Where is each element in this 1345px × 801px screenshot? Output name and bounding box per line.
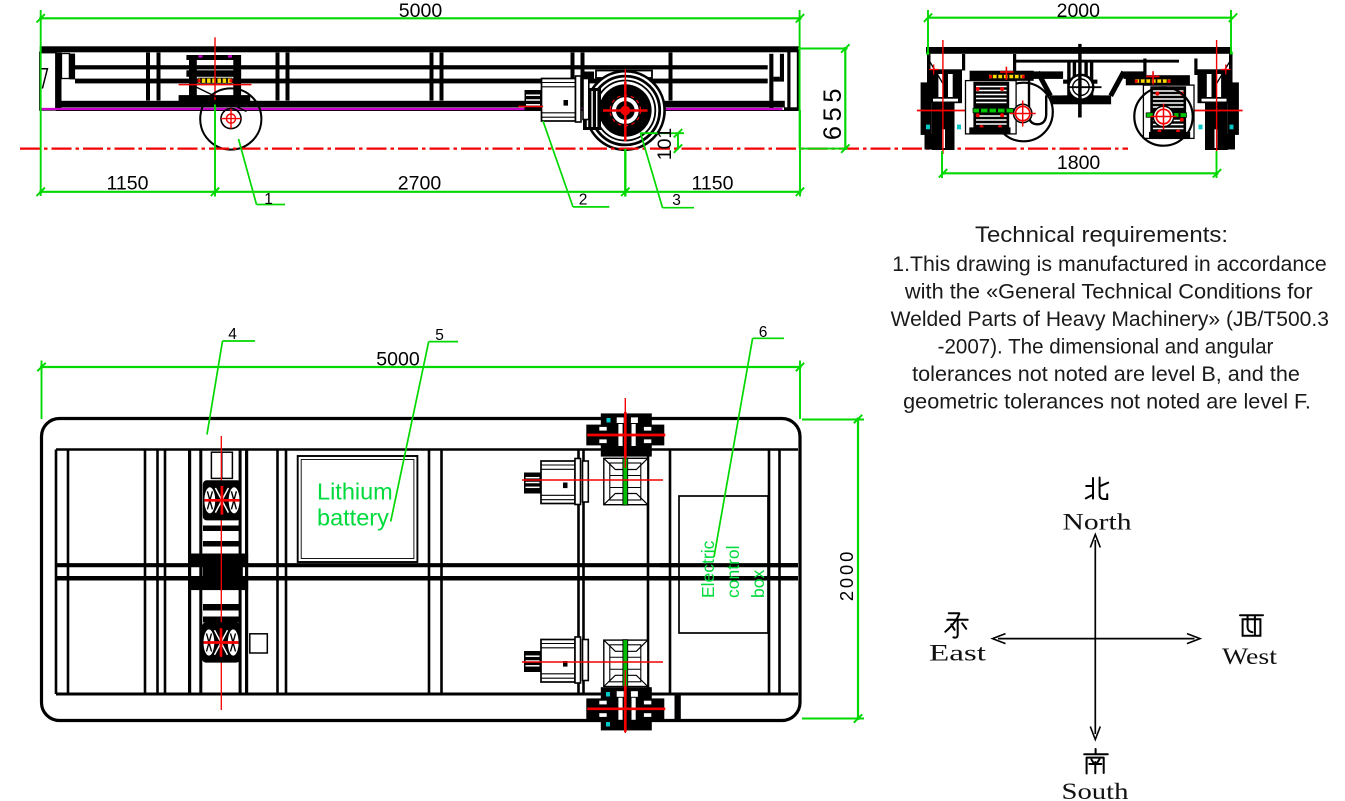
- svg-text:2000: 2000: [1057, 0, 1101, 22]
- svg-text:2000: 2000: [836, 549, 857, 601]
- svg-text:2: 2: [579, 192, 588, 209]
- svg-text:battery: battery: [317, 505, 389, 531]
- svg-text:2700: 2700: [398, 172, 442, 194]
- svg-text:5000: 5000: [376, 349, 420, 371]
- svg-text:5: 5: [435, 327, 444, 344]
- svg-text:West: West: [1222, 644, 1278, 670]
- svg-text:1800: 1800: [1057, 152, 1101, 174]
- svg-text:Welded Parts of Heavy Mach: Welded Parts of Heavy Machinery» (JB/T50…: [891, 307, 1329, 331]
- svg-text:North: North: [1063, 510, 1132, 536]
- svg-text:with the «General Technical: with the «General Technical Conditions f…: [904, 280, 1313, 304]
- svg-text:East: East: [929, 641, 987, 667]
- svg-text:5000: 5000: [399, 0, 443, 22]
- svg-text:tolerances not noted are l: tolerances not noted are level B, and th…: [912, 362, 1300, 386]
- svg-text:6: 6: [759, 324, 768, 341]
- svg-text:-2007). The dimensional and: -2007). The dimensional and angular: [938, 335, 1274, 359]
- svg-text:1150: 1150: [107, 172, 149, 194]
- svg-text:1.This drawing is manufactu: 1.This drawing is manufactured in accord…: [892, 252, 1327, 276]
- svg-text:1: 1: [264, 191, 273, 208]
- svg-text:1150: 1150: [692, 172, 734, 194]
- svg-text:Technical requirements:: Technical requirements:: [975, 222, 1228, 247]
- svg-text:Lithium: Lithium: [317, 479, 393, 505]
- svg-text:3: 3: [672, 192, 681, 209]
- svg-text:655: 655: [819, 84, 847, 140]
- svg-text:geometric tolerances not no: geometric tolerances not noted are level…: [903, 390, 1311, 414]
- svg-text:South: South: [1062, 779, 1129, 801]
- svg-text:101: 101: [654, 128, 676, 161]
- svg-text:4: 4: [228, 326, 237, 343]
